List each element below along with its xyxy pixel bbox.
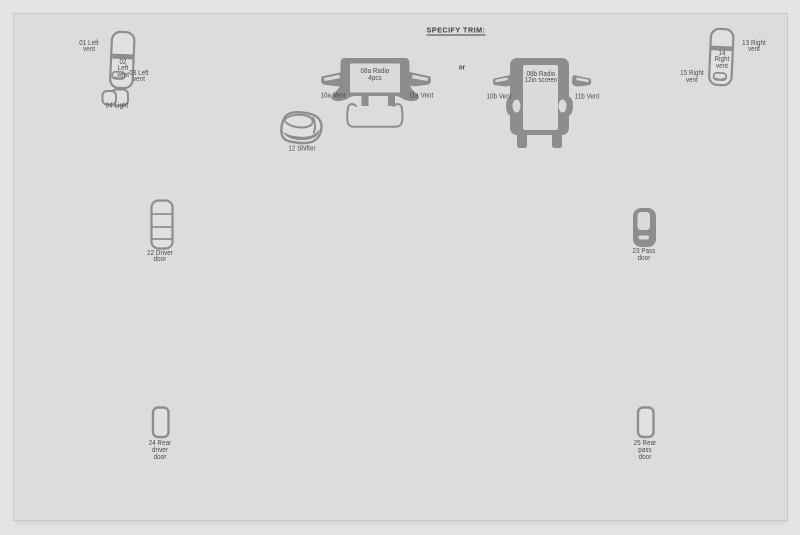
part-label-10b: 10b Vent (486, 95, 511, 102)
page-title: SPECIFY TRIM: (427, 26, 486, 35)
vent-11a-shape (404, 71, 432, 89)
part-label-03: 03 Left vent (129, 71, 148, 85)
part-label-15: 15 Right vent (680, 71, 704, 85)
part-label-13: 13 Right vent (742, 41, 766, 55)
part-label-12: 12 Shifter (288, 147, 315, 154)
part-label-11a: 11a Vent (409, 94, 434, 101)
part-label-08b: 08b Radio 12in screen (524, 72, 557, 86)
vent-10b-shape (492, 74, 514, 89)
part-label-11b: 11b Vent (575, 95, 600, 102)
part-label-08a: 08a Radio 4pcs (361, 69, 390, 83)
shifter-trim-shape (278, 110, 326, 146)
part-label-01: 01 Left vent (79, 41, 98, 55)
dash-kit-diagram: SPECIFY TRIM: (0, 0, 800, 535)
part-label-14: 14 Right vent (715, 50, 730, 70)
part-label-24: 24 Rear driver door (149, 441, 172, 461)
or-connector-label: or (458, 65, 464, 72)
driver-door-trim-shape (148, 197, 176, 252)
part-label-25: 25 Rear pass door (634, 441, 657, 461)
radio-12in-screen-shape (504, 53, 574, 158)
pass-door-trim-shape (630, 205, 660, 249)
rear-pass-door-trim-shape (635, 404, 657, 440)
vent-10a-shape (320, 71, 348, 89)
part-label-10a: 10a Vent (320, 94, 345, 101)
vent-11b-shape (570, 74, 592, 89)
part-label-23: 23 Pass door (633, 249, 656, 263)
part-label-04: 04 Light (105, 103, 128, 110)
rear-driver-door-trim-shape (150, 404, 172, 440)
part-label-22: 22 Driver door (147, 251, 173, 265)
part-label-02: 02 Left vent (117, 59, 129, 79)
